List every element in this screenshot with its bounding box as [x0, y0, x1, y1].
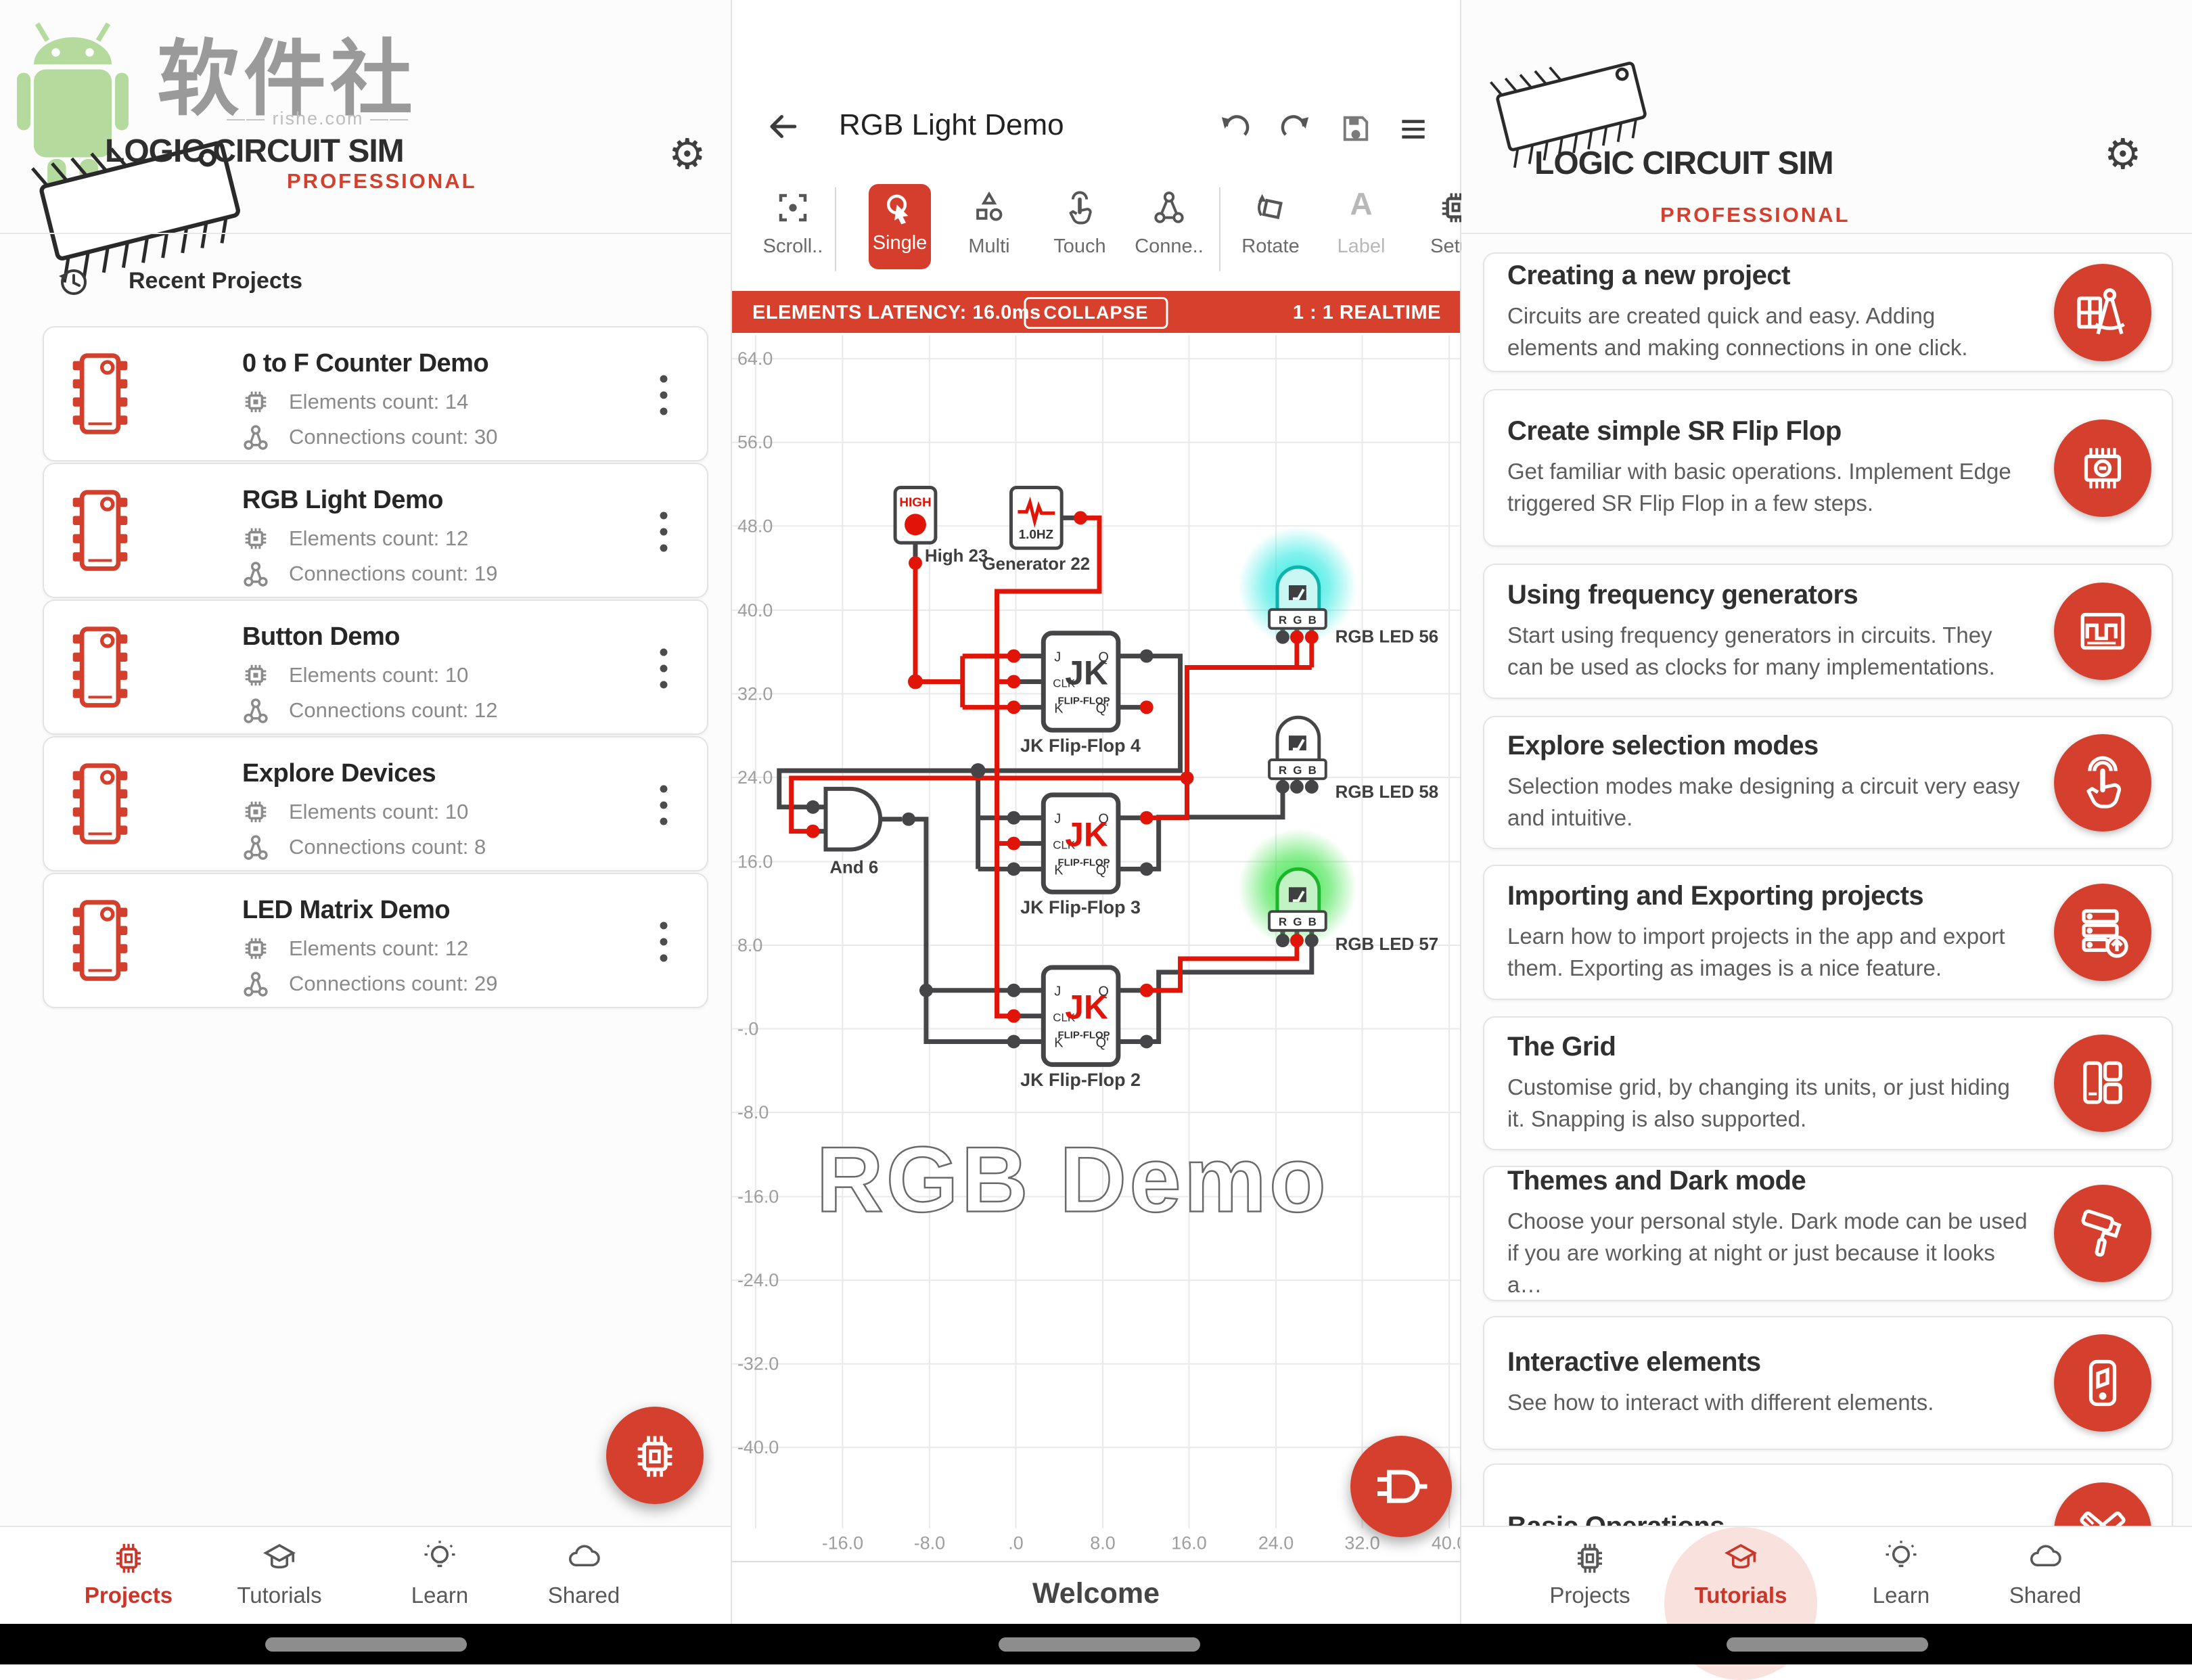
project-chip-icon — [71, 489, 129, 572]
project-menu-kebab[interactable] — [649, 913, 679, 970]
tool-multi[interactable]: Multi — [951, 184, 1027, 271]
svg-text:R: R — [1279, 915, 1287, 928]
project-connections-count: Connections count: 30 — [289, 425, 498, 449]
projects-chip-icon — [110, 1539, 147, 1576]
connections-count-icon — [242, 970, 269, 997]
nav-projects[interactable]: Projects — [1515, 1527, 1664, 1624]
tutorials-screen: LOGIC CIRCUIT SIM PROFESSIONAL ⚙ Creatin… — [1461, 0, 2192, 1664]
tool-touch[interactable]: Touch — [1042, 184, 1118, 271]
tutorial-icon-grid — [2054, 1035, 2151, 1132]
svg-text:FLIP-FLOP: FLIP-FLOP — [1057, 1029, 1110, 1041]
elements-count-icon — [242, 388, 269, 415]
svg-text:-16.0: -16.0 — [822, 1533, 863, 1553]
svg-text:G: G — [1293, 915, 1302, 928]
tutorial-card[interactable]: Explore selection modes Selection modes … — [1483, 716, 2173, 849]
tool-connection[interactable]: Conne.. — [1131, 184, 1207, 271]
app-edition: PROFESSIONAL — [1660, 203, 1850, 227]
projects-screen: 软件社 —— rishe.com —— LOGIC CIRCUIT SIM PR… — [0, 0, 731, 1664]
svg-text:RGB LED 58: RGB LED 58 — [1335, 783, 1439, 802]
tutorial-icon-sr-flipflop — [2054, 419, 2151, 517]
svg-text:-8.0: -8.0 — [737, 1102, 769, 1122]
svg-text:RGB LED 56: RGB LED 56 — [1335, 628, 1439, 647]
label-icon: A — [1323, 185, 1399, 222]
project-elements-count: Elements count: 10 — [289, 800, 468, 824]
connections-count-icon — [242, 697, 269, 724]
editor-title: RGB Light Demo — [839, 108, 1064, 142]
svg-text:JK Flip-Flop 2: JK Flip-Flop 2 — [1020, 1070, 1141, 1090]
tutorial-card[interactable]: Importing and Exporting projects Learn h… — [1483, 865, 2173, 1000]
gesture-pill[interactable] — [1727, 1637, 1928, 1652]
history-icon — [57, 265, 89, 298]
svg-text:8.0: 8.0 — [737, 935, 762, 955]
project-title: Button Demo — [242, 622, 400, 652]
project-menu-kebab[interactable] — [649, 777, 679, 834]
new-project-fab[interactable] — [606, 1407, 704, 1504]
svg-text:JK: JK — [1065, 654, 1108, 691]
project-connections-count: Connections count: 19 — [289, 562, 498, 586]
tutorial-icon-selection — [2054, 734, 2151, 832]
gesture-pill[interactable] — [999, 1637, 1200, 1652]
svg-text:JK Flip-Flop 3: JK Flip-Flop 3 — [1020, 897, 1141, 917]
svg-text:J: J — [1054, 650, 1061, 665]
project-card[interactable]: RGB Light Demo Elements count: 12 Connec… — [43, 463, 708, 598]
tutorial-card[interactable]: Using frequency generators Start using f… — [1483, 564, 2173, 699]
element-high[interactable]: HIGH High 23 — [895, 488, 988, 566]
tutorial-icon-frequency — [2054, 583, 2151, 680]
project-elements-count: Elements count: 14 — [289, 390, 468, 414]
svg-text:40.0: 40.0 — [1432, 1533, 1460, 1553]
svg-text:.0: .0 — [1008, 1533, 1023, 1553]
tutorials-cap-icon — [1722, 1539, 1759, 1576]
canvas-watermark: RGB Demo — [816, 1129, 1329, 1232]
project-card[interactable]: LED Matrix Demo Elements count: 12 Conne… — [43, 873, 708, 1008]
project-connections-count: Connections count: 8 — [289, 835, 486, 859]
toolbar-divider — [835, 187, 836, 271]
nav-learn[interactable]: Learn — [365, 1527, 514, 1624]
svg-text:-.0: -.0 — [737, 1019, 758, 1039]
single-select-icon — [882, 191, 918, 227]
latency-text: ELEMENTS LATENCY: 16.0ms — [752, 302, 1041, 324]
svg-text:FLIP-FLOP: FLIP-FLOP — [1057, 857, 1110, 868]
project-title: 0 to F Counter Demo — [242, 349, 488, 378]
svg-text:64.0: 64.0 — [737, 348, 773, 369]
svg-text:R: R — [1279, 614, 1287, 627]
tool-rotate[interactable]: Rotate — [1233, 184, 1308, 271]
collapse-button[interactable]: COLLAPSE — [1024, 297, 1168, 329]
project-elements-count: Elements count: 12 — [289, 526, 468, 551]
tool-scroll[interactable]: Scroll.. — [755, 184, 831, 271]
settings-gear-icon[interactable]: ⚙ — [2104, 134, 2142, 176]
element-generator[interactable]: 1.0HZ Generator 22 — [982, 488, 1090, 574]
tutorial-icon-new-project — [2054, 264, 2151, 361]
realtime-text: 1 : 1 REALTIME — [1293, 302, 1441, 324]
svg-text:8.0: 8.0 — [1090, 1533, 1115, 1553]
touch-icon — [1061, 189, 1098, 226]
svg-text:B: B — [1308, 764, 1317, 777]
elements-count-icon — [242, 935, 269, 962]
connections-count-icon — [242, 424, 269, 451]
bottom-nav: Projects Tutorials Learn Shared — [1461, 1526, 2192, 1624]
tutorial-card[interactable]: The Grid Customise grid, by changing its… — [1483, 1016, 2173, 1150]
project-menu-kebab[interactable] — [649, 640, 679, 697]
y-axis-ticks: 64.056.0 48.040.0 32.024.0 16.08.0 -.0-8… — [737, 348, 779, 1457]
svg-text:16.0: 16.0 — [1171, 1533, 1206, 1553]
svg-text:JK: JK — [1065, 989, 1108, 1026]
learn-bulb-icon — [1883, 1539, 1919, 1576]
connections-count-icon — [242, 834, 269, 861]
chip-icon — [629, 1430, 681, 1481]
svg-text:24.0: 24.0 — [1258, 1533, 1294, 1553]
project-elements-count: Elements count: 10 — [289, 663, 468, 687]
nav-learn[interactable]: Learn — [1827, 1527, 1976, 1624]
elements-count-icon — [242, 525, 269, 552]
add-element-fab[interactable] — [1350, 1436, 1452, 1537]
svg-text:-40.0: -40.0 — [737, 1437, 779, 1457]
project-card[interactable]: Explore Devices Elements count: 10 Conne… — [43, 736, 708, 871]
connections-count-icon — [242, 560, 269, 587]
undo-icon[interactable] — [1216, 110, 1253, 146]
tool-single[interactable]: Single — [869, 184, 931, 269]
grid-lines — [732, 335, 1460, 1528]
svg-text:B: B — [1308, 915, 1317, 928]
shared-cloud-icon — [566, 1539, 602, 1576]
svg-text:G: G — [1293, 764, 1302, 777]
shared-cloud-icon — [2027, 1539, 2063, 1576]
tutorial-icon-themes — [2054, 1185, 2151, 1282]
svg-text:32.0: 32.0 — [737, 683, 773, 704]
svg-text:-24.0: -24.0 — [737, 1270, 779, 1290]
project-card[interactable]: 0 to F Counter Demo Elements count: 14 C… — [43, 326, 708, 461]
svg-text:JK Flip-Flop 4: JK Flip-Flop 4 — [1020, 735, 1141, 756]
svg-text:24.0: 24.0 — [737, 767, 773, 788]
rotate-icon — [1252, 189, 1289, 226]
svg-text:16.0: 16.0 — [737, 851, 773, 871]
header-divider — [0, 233, 731, 234]
project-title: LED Matrix Demo — [242, 896, 450, 925]
svg-text:High 23: High 23 — [925, 547, 988, 566]
nav-projects[interactable]: Projects — [54, 1527, 203, 1624]
tutorial-card[interactable]: Interactive elements See how to interact… — [1483, 1316, 2173, 1450]
svg-text:32.0: 32.0 — [1344, 1533, 1379, 1553]
save-icon[interactable] — [1338, 111, 1373, 146]
header-divider — [1461, 233, 2192, 234]
connection-icon — [1151, 189, 1187, 226]
app-title: LOGIC CIRCUIT SIM — [105, 133, 404, 170]
gesture-pill[interactable] — [265, 1637, 467, 1652]
svg-text:1.0HZ: 1.0HZ — [1019, 528, 1054, 542]
svg-text:48.0: 48.0 — [737, 516, 773, 536]
svg-text:J: J — [1054, 984, 1061, 999]
editor-screen: RGB Light Demo Scroll.. Single Multi Tou… — [731, 0, 1461, 1664]
elements-count-icon — [242, 662, 269, 689]
element-ff4[interactable]: J CLK K Q Q' JK FLIP-FLOP JK Flip-Flop 4 — [1020, 633, 1141, 756]
project-title: Explore Devices — [242, 759, 436, 788]
welcome-text: Welcome — [732, 1577, 1460, 1610]
wires-active — [792, 518, 1312, 1016]
svg-text:56.0: 56.0 — [737, 432, 773, 453]
project-menu-kebab[interactable] — [649, 503, 679, 560]
nav-tutorials[interactable]: Tutorials — [205, 1527, 354, 1624]
nav-tutorials[interactable]: Tutorials — [1666, 1527, 1815, 1624]
svg-text:JK: JK — [1065, 816, 1108, 854]
project-menu-kebab[interactable] — [649, 367, 679, 424]
tutorial-card[interactable]: Themes and Dark mode Choose your persona… — [1483, 1166, 2173, 1301]
and-gate-icon — [1373, 1458, 1430, 1515]
section-title: Recent Projects — [129, 268, 302, 294]
projects-chip-icon — [1572, 1539, 1608, 1576]
tutorial-icon-interactive — [2054, 1334, 2151, 1432]
simulation-banner: ELEMENTS LATENCY: 16.0ms COLLAPSE 1 : 1 … — [732, 291, 1460, 333]
tool-label[interactable]: A Label — [1323, 184, 1399, 271]
svg-text:R: R — [1279, 764, 1287, 777]
svg-text:FLIP-FLOP: FLIP-FLOP — [1057, 695, 1110, 706]
svg-text:HIGH: HIGH — [899, 495, 931, 509]
project-title: RGB Light Demo — [242, 486, 443, 515]
app-edition: PROFESSIONAL — [287, 169, 477, 194]
welcome-bar: Welcome — [732, 1561, 1460, 1625]
scroll-icon — [775, 189, 811, 226]
bottom-nav: Projects Tutorials Learn Shared — [0, 1526, 731, 1624]
circuit-canvas[interactable]: RGB Demo 64.056.0 48.040.0 32.024.0 16.0… — [732, 333, 1460, 1561]
back-icon[interactable] — [760, 107, 800, 146]
project-connections-count: Connections count: 29 — [289, 972, 498, 996]
redo-icon[interactable] — [1277, 110, 1314, 146]
svg-text:RGB LED 57: RGB LED 57 — [1335, 935, 1439, 954]
svg-text:-16.0: -16.0 — [737, 1187, 779, 1207]
learn-bulb-icon — [421, 1539, 458, 1576]
settings-gear-icon[interactable]: ⚙ — [668, 134, 706, 176]
svg-text:-32.0: -32.0 — [737, 1354, 779, 1374]
element-and-gate[interactable]: And 6 — [825, 789, 880, 878]
nav-shared[interactable]: Shared — [1971, 1527, 2120, 1624]
project-chip-icon — [71, 762, 129, 846]
svg-text:-8.0: -8.0 — [914, 1533, 945, 1553]
tutorial-card[interactable]: Create simple SR Flip Flop Get familiar … — [1483, 389, 2173, 547]
svg-text:40.0: 40.0 — [737, 600, 773, 620]
multi-select-icon — [971, 189, 1007, 226]
project-chip-icon — [71, 625, 129, 709]
project-card[interactable]: Button Demo Elements count: 10 Connectio… — [43, 599, 708, 735]
elements-count-icon — [242, 798, 269, 825]
project-elements-count: Elements count: 12 — [289, 936, 468, 961]
project-chip-icon — [71, 899, 129, 982]
system-gesture-bar — [0, 1624, 2192, 1664]
element-ff3[interactable]: J CLK K Q Q' JK FLIP-FLOP JK Flip-Flop 3 — [1020, 795, 1141, 917]
toolbar-divider — [1219, 187, 1220, 271]
tutorial-icon-import-export — [2054, 884, 2151, 981]
svg-text:B: B — [1308, 614, 1317, 627]
svg-text:J: J — [1054, 812, 1061, 827]
tutorials-cap-icon — [261, 1539, 298, 1576]
svg-text:Generator 22: Generator 22 — [982, 555, 1090, 574]
svg-text:G: G — [1293, 614, 1302, 627]
tutorial-card[interactable]: Creating a new project Circuits are crea… — [1483, 252, 2173, 372]
svg-text:And 6: And 6 — [829, 858, 878, 877]
nav-shared[interactable]: Shared — [509, 1527, 658, 1624]
app-title: LOGIC CIRCUIT SIM — [1534, 145, 1833, 182]
x-axis-ticks: -16.0-8.0 .08.0 16.024.0 32.040.0 — [822, 1533, 1460, 1553]
project-chip-icon — [71, 352, 129, 436]
menu-icon[interactable] — [1396, 112, 1430, 146]
project-connections-count: Connections count: 12 — [289, 698, 498, 723]
